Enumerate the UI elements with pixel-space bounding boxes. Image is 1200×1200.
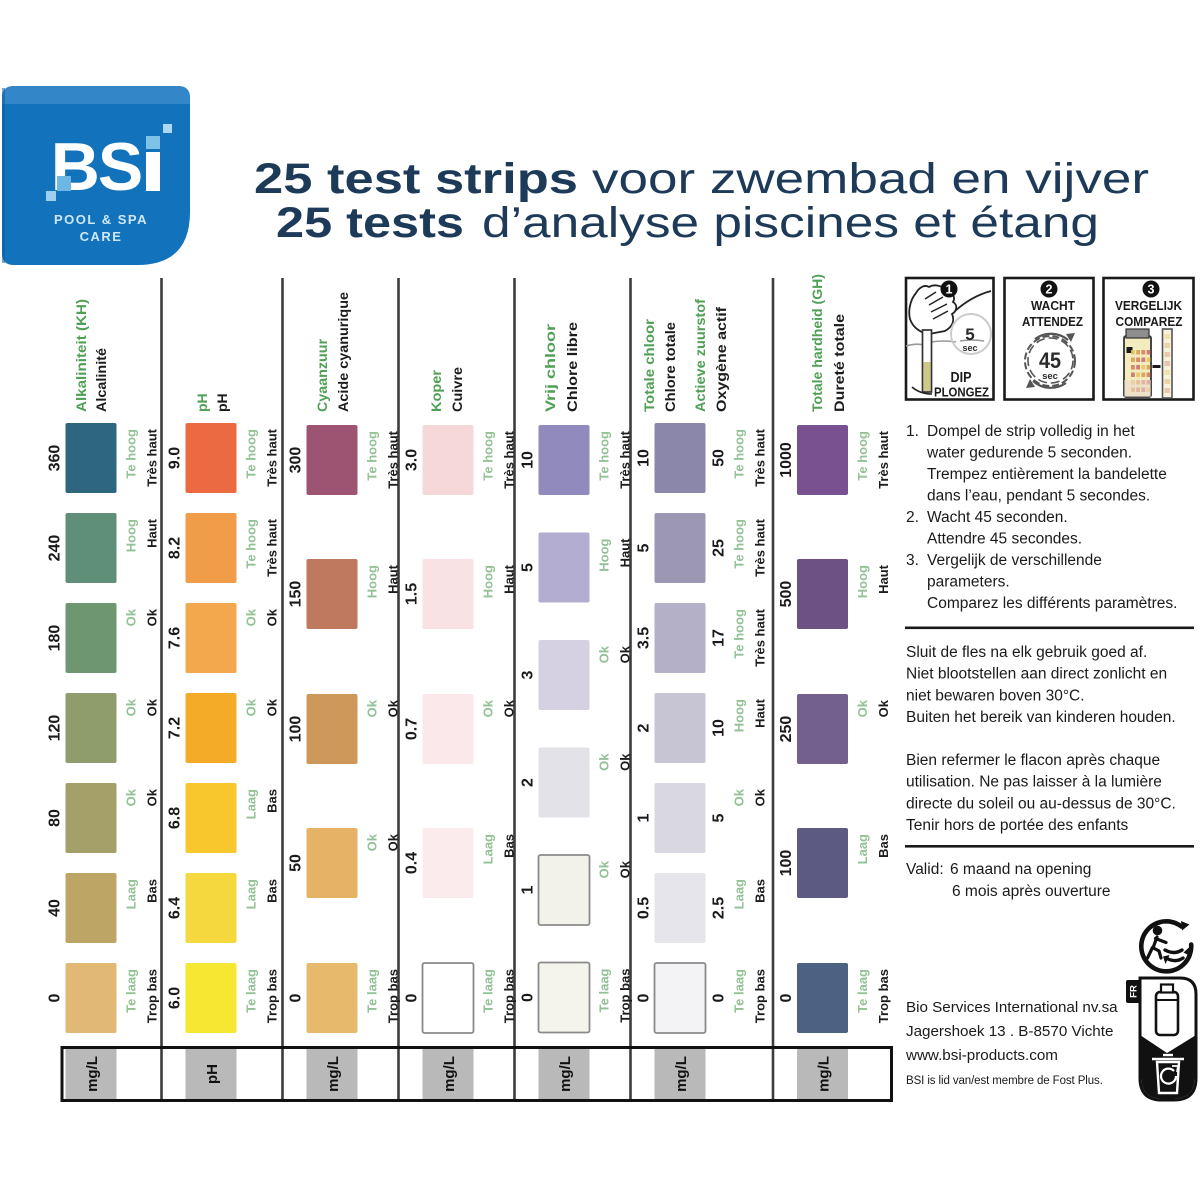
svg-text:Vrij chloor: Vrij chloor	[542, 323, 558, 412]
svg-text:mg/L: mg/L	[84, 1056, 101, 1092]
svg-text:Dompel de strip volledig in he: Dompel de strip volledig in het	[927, 423, 1135, 440]
svg-text:Alkaliniteit (KH): Alkaliniteit (KH)	[73, 299, 89, 412]
svg-text:300: 300	[288, 447, 305, 474]
svg-text:Niet blootstellen aan direct z: Niet blootstellen aan direct zonlicht en	[906, 666, 1167, 683]
svg-text:50: 50	[288, 854, 305, 872]
svg-text:Trop bas: Trop bas	[876, 969, 891, 1023]
svg-text:Te laag: Te laag	[481, 969, 496, 1013]
svg-text:Te hoog: Te hoog	[124, 429, 139, 479]
svg-text:7.6: 7.6	[167, 627, 184, 649]
svg-text:Chlore libre: Chlore libre	[564, 322, 580, 412]
svg-text:sec: sec	[1042, 371, 1058, 382]
svg-text:Te hoog: Te hoog	[732, 609, 747, 659]
svg-text:Hoog: Hoog	[124, 519, 139, 552]
svg-text:2.: 2.	[906, 509, 919, 526]
svg-text:Bas: Bas	[145, 879, 160, 903]
svg-text:mg/L: mg/L	[325, 1056, 342, 1092]
svg-text:Attendre 45 secondes.: Attendre 45 secondes.	[927, 531, 1082, 548]
svg-text:Bas: Bas	[265, 879, 280, 903]
svg-text:Haut: Haut	[145, 518, 160, 548]
svg-text:100: 100	[288, 716, 305, 743]
svg-text:2: 2	[636, 723, 653, 732]
svg-text:Actieve zuurstof: Actieve zuurstof	[692, 299, 708, 412]
svg-text:Ok: Ok	[124, 788, 139, 806]
svg-text:Te hoog: Te hoog	[732, 429, 747, 479]
svg-text:Ok: Ok	[732, 788, 747, 806]
svg-text:Très haut: Très haut	[145, 428, 160, 486]
svg-text:0.7: 0.7	[404, 718, 421, 740]
svg-text:Ok: Ok	[386, 833, 401, 851]
svg-text:Trop bas: Trop bas	[618, 969, 633, 1023]
svg-text:6 mois après ouverture: 6 mois après ouverture	[952, 883, 1111, 900]
svg-text:Chlore totale: Chlore totale	[662, 322, 678, 412]
svg-text:Te laag: Te laag	[124, 969, 139, 1013]
svg-text:Haut: Haut	[502, 564, 517, 594]
svg-text:mg/L: mg/L	[557, 1056, 574, 1092]
svg-text:5: 5	[520, 563, 537, 572]
svg-text:Te laag: Te laag	[732, 969, 747, 1013]
svg-text:120: 120	[47, 715, 64, 742]
svg-text:0: 0	[47, 993, 64, 1002]
svg-text:WACHT: WACHT	[1031, 298, 1075, 313]
svg-text:Te hoog: Te hoog	[481, 431, 496, 481]
svg-text:directe du soleil ou au-dessus: directe du soleil ou au-dessus de 30°C.	[906, 795, 1176, 812]
svg-text:1000: 1000	[778, 442, 795, 478]
svg-text:Cuivre: Cuivre	[449, 367, 465, 412]
svg-text:VERGELIJK: VERGELIJK	[1115, 298, 1183, 313]
svg-text:voor zwembad en vijver: voor zwembad en vijver	[592, 155, 1149, 203]
svg-text:1: 1	[520, 885, 537, 894]
svg-text:Très haut: Très haut	[386, 430, 401, 488]
svg-text:Te laag: Te laag	[244, 969, 259, 1013]
svg-text:CARE: CARE	[80, 229, 123, 244]
svg-text:Très haut: Très haut	[265, 428, 280, 486]
svg-text:80: 80	[47, 809, 64, 827]
svg-text:Très haut: Très haut	[618, 430, 633, 488]
svg-text:pH: pH	[194, 393, 210, 412]
svg-text:Haut: Haut	[386, 564, 401, 594]
svg-text:Ok: Ok	[618, 645, 633, 663]
svg-text:25 tests: 25 tests	[276, 199, 464, 247]
svg-text:Te hoog: Te hoog	[244, 429, 259, 479]
svg-text:www.bsi-products.com: www.bsi-products.com	[905, 1047, 1058, 1064]
svg-text:5: 5	[636, 543, 653, 552]
svg-text:3.5: 3.5	[636, 627, 653, 649]
svg-text:Haut: Haut	[876, 564, 891, 594]
svg-text:3.0: 3.0	[404, 449, 421, 471]
svg-text:Vergelijk de verschillende: Vergelijk de verschillende	[927, 552, 1102, 569]
svg-text:0: 0	[404, 993, 421, 1002]
svg-text:100: 100	[778, 850, 795, 877]
svg-text:Ok: Ok	[265, 698, 280, 716]
svg-text:Haut: Haut	[753, 698, 768, 728]
svg-text:parameters.: parameters.	[927, 574, 1010, 591]
svg-text:2.5: 2.5	[711, 897, 728, 919]
svg-text:0: 0	[778, 993, 795, 1002]
svg-text:Te hoog: Te hoog	[732, 519, 747, 569]
svg-text:Trop bas: Trop bas	[753, 969, 768, 1023]
svg-text:10: 10	[520, 451, 537, 469]
svg-text:ATTENDEZ: ATTENDEZ	[1022, 314, 1083, 329]
svg-text:Bas: Bas	[502, 834, 517, 858]
svg-text:Ok: Ok	[145, 698, 160, 716]
svg-text:mg/L: mg/L	[816, 1056, 833, 1092]
svg-text:8.2: 8.2	[167, 537, 184, 559]
svg-text:25 test strips: 25 test strips	[254, 155, 578, 203]
svg-text:150: 150	[288, 581, 305, 608]
svg-text:Très haut: Très haut	[265, 518, 280, 576]
svg-text:Ok: Ok	[145, 788, 160, 806]
svg-text:Trop bas: Trop bas	[386, 969, 401, 1023]
svg-text:water gedurende 5 seconden.: water gedurende 5 seconden.	[926, 445, 1132, 462]
svg-text:0: 0	[288, 993, 305, 1002]
svg-text:1.5: 1.5	[404, 583, 421, 605]
svg-text:BS: BS	[51, 129, 141, 205]
svg-text:0.4: 0.4	[404, 852, 421, 874]
svg-text:COMPAREZ: COMPAREZ	[1116, 314, 1183, 329]
svg-text:Alcalinité: Alcalinité	[93, 348, 109, 412]
svg-text:0: 0	[711, 993, 728, 1002]
svg-text:pH: pH	[204, 1064, 221, 1084]
svg-text:Ok: Ok	[597, 860, 612, 878]
svg-text:Ok: Ok	[365, 833, 380, 851]
svg-text:40: 40	[47, 899, 64, 917]
svg-text:Trop bas: Trop bas	[265, 969, 280, 1023]
svg-text:250: 250	[778, 716, 795, 743]
svg-text:Te laag: Te laag	[597, 968, 612, 1012]
svg-text:1.: 1.	[906, 423, 919, 440]
svg-text:d’analyse piscines et étang: d’analyse piscines et étang	[482, 199, 1099, 247]
svg-text:360: 360	[47, 445, 64, 472]
svg-text:Comparez les différents paramè: Comparez les différents paramètres.	[927, 595, 1177, 612]
svg-text:Laag: Laag	[244, 879, 259, 909]
svg-text:17: 17	[711, 629, 728, 647]
svg-text:180: 180	[47, 625, 64, 652]
svg-text:Te hoog: Te hoog	[855, 431, 870, 481]
svg-text:Valid:: Valid:	[906, 861, 944, 878]
svg-text:Ok: Ok	[618, 860, 633, 878]
svg-text:50: 50	[711, 449, 728, 467]
svg-text:Te hoog: Te hoog	[365, 431, 380, 481]
svg-text:Ok: Ok	[502, 699, 517, 717]
svg-text:5: 5	[711, 813, 728, 822]
svg-text:Ok: Ok	[618, 753, 633, 771]
svg-text:sec: sec	[962, 343, 977, 353]
svg-text:10: 10	[711, 719, 728, 737]
svg-text:Hoog: Hoog	[597, 538, 612, 571]
svg-text:Hoog: Hoog	[365, 565, 380, 598]
svg-text:Ok: Ok	[481, 699, 496, 717]
svg-text:Laag: Laag	[855, 834, 870, 864]
svg-text:PLONGEZ: PLONGEZ	[934, 385, 989, 400]
svg-text:pH: pH	[214, 393, 230, 412]
svg-text:7.2: 7.2	[167, 717, 184, 739]
svg-text:Bas: Bas	[753, 879, 768, 903]
svg-text:3: 3	[1148, 283, 1155, 297]
svg-text:dans l’eau, pendant 5 secondes: dans l’eau, pendant 5 secondes.	[927, 488, 1150, 505]
svg-text:Laag: Laag	[244, 789, 259, 819]
svg-text:Ok: Ok	[265, 608, 280, 626]
svg-text:Totale hardheid (GH): Totale hardheid (GH)	[809, 274, 825, 412]
svg-text:0: 0	[636, 993, 653, 1002]
svg-text:Haut: Haut	[618, 538, 633, 568]
svg-text:Te hoog: Te hoog	[244, 519, 259, 569]
svg-text:Hoog: Hoog	[855, 565, 870, 598]
svg-text:5: 5	[965, 325, 974, 344]
svg-text:Hoog: Hoog	[732, 699, 747, 732]
svg-text:Laag: Laag	[124, 879, 139, 909]
svg-text:Buiten het bereik van kinderen: Buiten het bereik van kinderen houden.	[906, 709, 1176, 726]
svg-text:FR: FR	[1129, 985, 1140, 998]
svg-text:Très haut: Très haut	[753, 518, 768, 576]
svg-text:Totale chloor: Totale chloor	[641, 318, 657, 412]
svg-text:Dureté totale: Dureté totale	[831, 314, 847, 412]
svg-text:Jagershoek 13 . B-8570 Vichte: Jagershoek 13 . B-8570 Vichte	[906, 1023, 1113, 1040]
svg-text:niet bewaren boven 30°C.: niet bewaren boven 30°C.	[906, 687, 1085, 704]
svg-text:500: 500	[778, 581, 795, 608]
svg-text:9.0: 9.0	[167, 447, 184, 469]
svg-text:Ok: Ok	[753, 788, 768, 806]
svg-text:Bas: Bas	[876, 834, 891, 858]
svg-text:6 maand na opening: 6 maand na opening	[950, 861, 1091, 878]
svg-text:Ok: Ok	[124, 608, 139, 626]
svg-text:Tenir hors de portée des enfan: Tenir hors de portée des enfants	[906, 817, 1129, 834]
svg-text:Koper: Koper	[428, 369, 444, 412]
svg-text:Ok: Ok	[876, 699, 891, 717]
svg-text:45: 45	[1039, 348, 1061, 373]
svg-text:240: 240	[47, 535, 64, 562]
svg-text:3: 3	[520, 670, 537, 679]
svg-text:Bas: Bas	[265, 789, 280, 813]
svg-text:Ok: Ok	[365, 699, 380, 717]
svg-text:Ok: Ok	[855, 699, 870, 717]
svg-text:Laag: Laag	[732, 879, 747, 909]
svg-text:Ok: Ok	[145, 608, 160, 626]
svg-text:Ok: Ok	[124, 698, 139, 716]
svg-text:10: 10	[636, 449, 653, 467]
svg-text:Ok: Ok	[597, 645, 612, 663]
svg-text:mg/L: mg/L	[441, 1056, 458, 1092]
svg-text:Trop bas: Trop bas	[502, 969, 517, 1023]
svg-text:Oxygène actif: Oxygène actif	[713, 307, 729, 412]
svg-text:Bio Services International nv.: Bio Services International nv.sa	[906, 999, 1118, 1016]
svg-text:Sluit de fles na elk gebruik g: Sluit de fles na elk gebruik goed af.	[906, 644, 1147, 661]
svg-text:BSI is lid van/est membre de F: BSI is lid van/est membre de Fost Plus.	[906, 1075, 1103, 1087]
svg-text:Trop bas: Trop bas	[145, 969, 160, 1023]
svg-text:Bien refermer le flacon après: Bien refermer le flacon après chaque	[906, 752, 1160, 769]
svg-text:Cyaanzuur: Cyaanzuur	[314, 338, 330, 412]
svg-text:Ok: Ok	[244, 698, 259, 716]
svg-text:Hoog: Hoog	[481, 565, 496, 598]
svg-text:6.0: 6.0	[167, 987, 184, 1009]
svg-text:Très haut: Très haut	[876, 430, 891, 488]
svg-text:Très haut: Très haut	[753, 428, 768, 486]
svg-text:Te laag: Te laag	[365, 969, 380, 1013]
svg-text:6.8: 6.8	[167, 807, 184, 829]
svg-text:2: 2	[520, 778, 537, 787]
svg-text:Ok: Ok	[244, 608, 259, 626]
svg-text:0.5: 0.5	[636, 897, 653, 919]
svg-text:25: 25	[711, 539, 728, 557]
svg-text:1: 1	[946, 283, 953, 297]
svg-text:6.4: 6.4	[167, 897, 184, 919]
svg-text:utilisation. Ne pas laisser à: utilisation. Ne pas laisser à la lumière	[906, 774, 1162, 791]
svg-text:mg/L: mg/L	[673, 1056, 690, 1092]
svg-text:Te laag: Te laag	[855, 969, 870, 1013]
svg-text:3.: 3.	[906, 552, 919, 569]
svg-text:Wacht 45 seconden.: Wacht 45 seconden.	[927, 509, 1068, 526]
svg-text:Très haut: Très haut	[502, 430, 517, 488]
svg-text:Ok: Ok	[386, 699, 401, 717]
svg-text:Ok: Ok	[597, 753, 612, 771]
svg-text:Trempez entièrement la bandele: Trempez entièrement la bandelette	[927, 466, 1167, 483]
svg-text:2: 2	[1046, 283, 1053, 297]
svg-text:Te hoog: Te hoog	[597, 431, 612, 481]
svg-text:POOL & SPA: POOL & SPA	[54, 212, 148, 227]
svg-text:1: 1	[636, 813, 653, 822]
svg-text:Très haut: Très haut	[753, 608, 768, 666]
svg-text:0: 0	[520, 993, 537, 1002]
svg-text:Acide cyanurique: Acide cyanurique	[335, 292, 351, 412]
svg-text:Laag: Laag	[481, 834, 496, 864]
